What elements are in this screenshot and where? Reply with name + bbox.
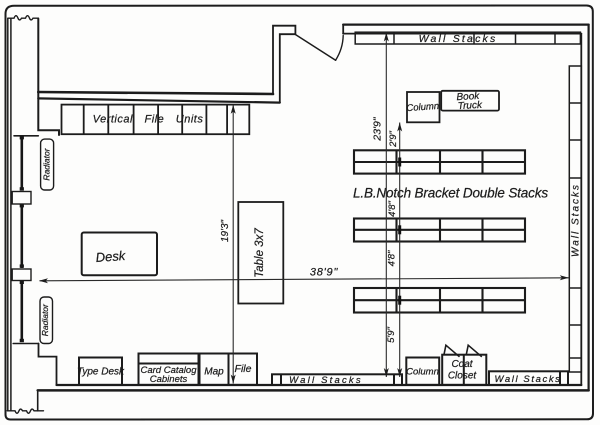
svg-text:Wall Stacks: Wall Stacks xyxy=(289,375,363,386)
svg-text:Wall Stacks: Wall Stacks xyxy=(494,374,561,385)
svg-text:Radiator: Radiator xyxy=(40,303,50,336)
svg-text:File: File xyxy=(235,363,252,375)
svg-text:5'9": 5'9" xyxy=(386,327,397,343)
svg-text:Column: Column xyxy=(406,367,439,378)
svg-text:Cabinets: Cabinets xyxy=(150,374,188,385)
svg-text:Desk: Desk xyxy=(95,248,127,265)
svg-text:23'9": 23'9" xyxy=(372,116,384,142)
svg-text:L.B.Notch Bracket Double Stack: L.B.Notch Bracket Double Stacks xyxy=(353,186,548,201)
svg-text:Wall Stacks: Wall Stacks xyxy=(419,33,498,45)
svg-text:Column: Column xyxy=(406,101,439,114)
svg-text:Truck: Truck xyxy=(457,100,483,112)
svg-text:Wall Stacks: Wall Stacks xyxy=(570,183,581,257)
svg-text:Coat: Coat xyxy=(451,359,473,370)
svg-text:2'9": 2'9" xyxy=(388,131,399,148)
svg-text:4'8": 4'8" xyxy=(387,250,398,266)
svg-text:38'9": 38'9" xyxy=(310,267,339,279)
svg-text:Table 3x7: Table 3x7 xyxy=(254,228,266,278)
svg-text:Closet: Closet xyxy=(448,371,478,382)
svg-text:Vertical File Units: Vertical File Units xyxy=(93,114,204,126)
svg-text:Type Desk: Type Desk xyxy=(77,367,125,378)
svg-text:19'3": 19'3" xyxy=(220,219,231,242)
svg-text:Map: Map xyxy=(204,367,224,378)
svg-text:Radiator: Radiator xyxy=(42,147,52,180)
svg-text:4'8": 4'8" xyxy=(387,201,398,217)
